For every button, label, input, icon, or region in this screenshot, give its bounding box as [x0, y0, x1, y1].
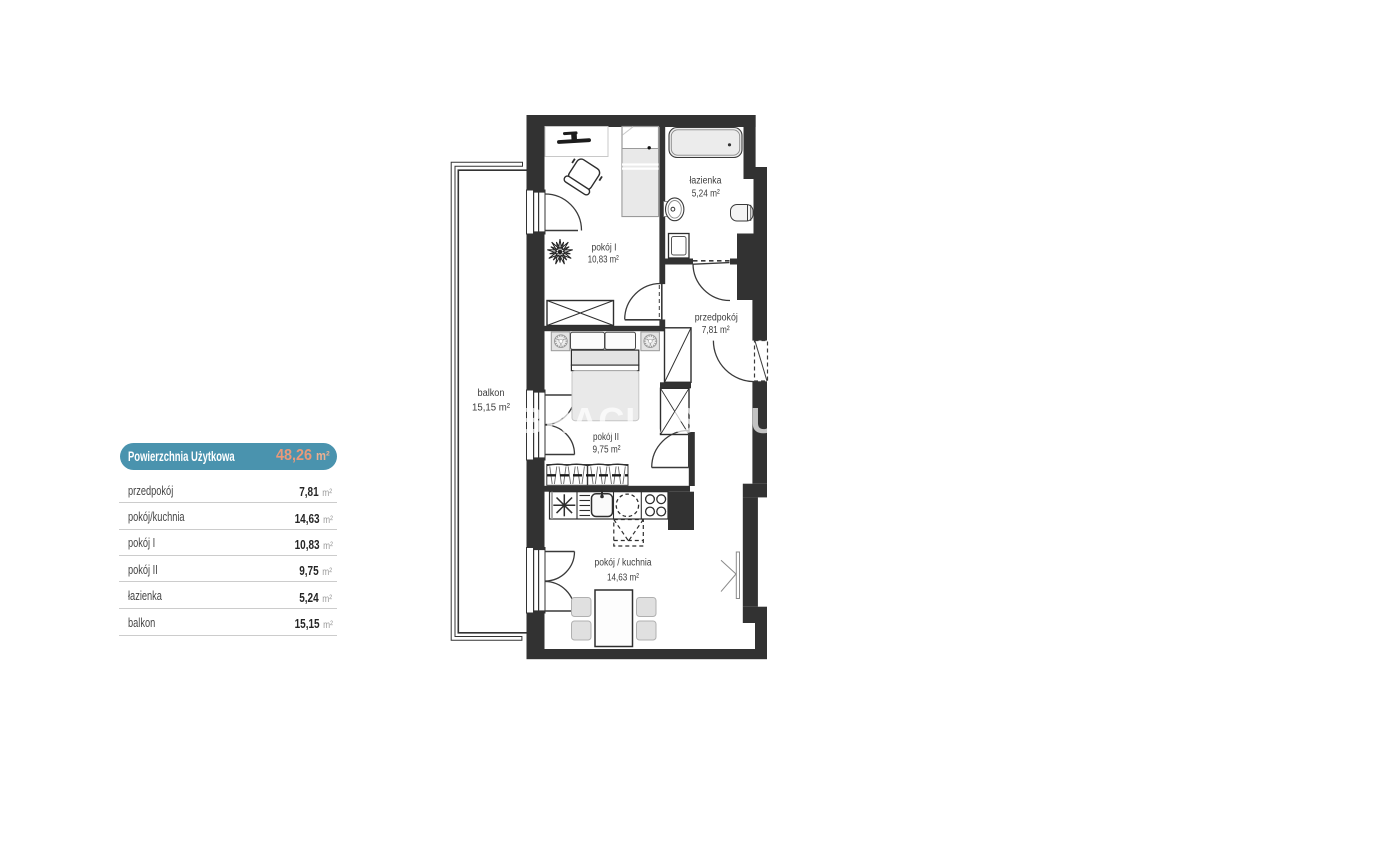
svg-text:10,83 m²: 10,83 m² — [588, 255, 620, 266]
svg-text:14,63 m²: 14,63 m² — [607, 573, 640, 584]
svg-text:przedpokój: przedpokój — [695, 313, 738, 324]
svg-text:balkon: balkon — [478, 388, 505, 399]
svg-text:7,81 m²: 7,81 m² — [702, 325, 731, 336]
svg-text:pokój / kuchnia: pokój / kuchnia — [595, 558, 652, 569]
svg-text:9,75 m²: 9,75 m² — [593, 445, 622, 456]
svg-text:łazienka: łazienka — [690, 176, 722, 187]
svg-text:BRACIA SADURSCY: BRACIA SADURSCY — [518, 400, 881, 441]
svg-text:15,15 m²: 15,15 m² — [472, 403, 511, 414]
svg-text:pokój I: pokój I — [592, 243, 617, 254]
svg-text:5,24 m²: 5,24 m² — [692, 189, 721, 200]
